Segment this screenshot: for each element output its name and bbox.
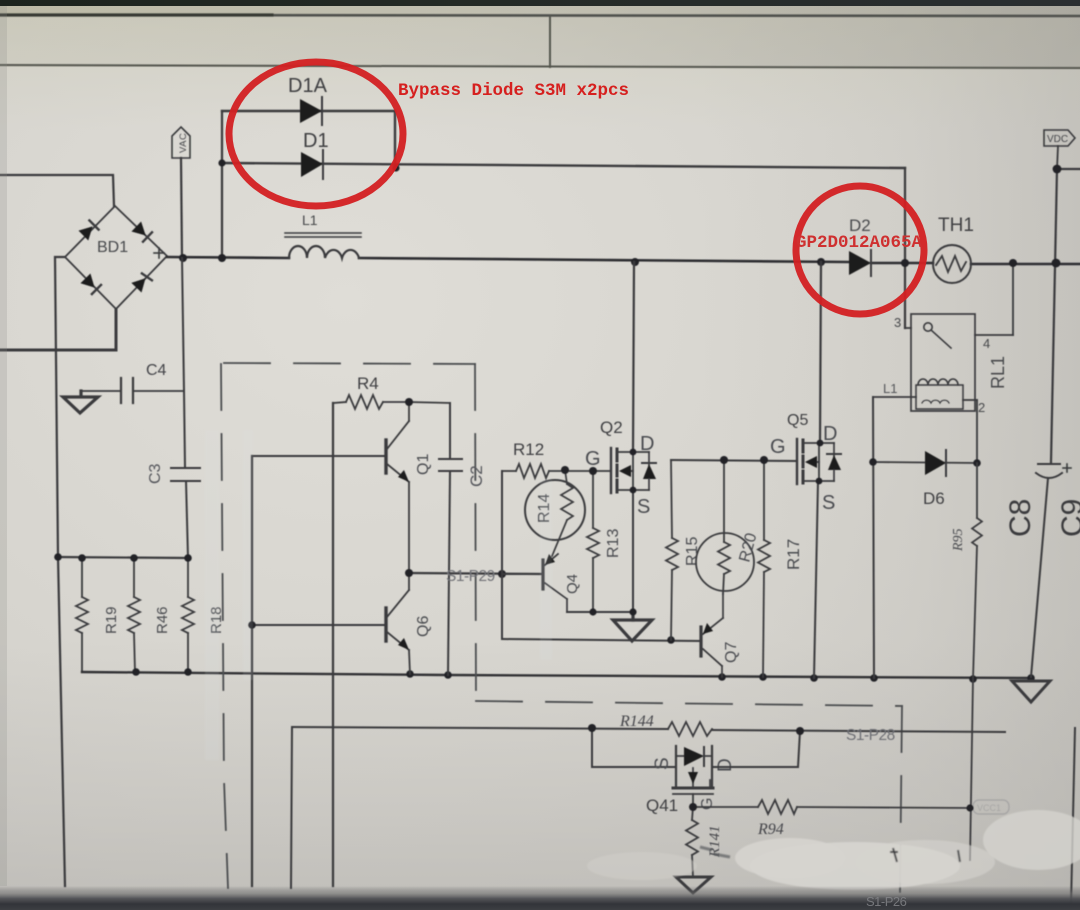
- svg-text:2: 2: [978, 400, 985, 415]
- svg-text:R17: R17: [784, 539, 803, 570]
- svg-text:C8: C8: [1004, 499, 1037, 537]
- svg-text:RL1: RL1: [988, 356, 1008, 389]
- svg-text:Q2: Q2: [600, 418, 623, 437]
- svg-text:G: G: [699, 798, 716, 810]
- svg-text:R12: R12: [513, 440, 544, 459]
- svg-text:D6: D6: [923, 489, 945, 508]
- svg-text:Q6: Q6: [415, 616, 432, 637]
- svg-text:4: 4: [983, 336, 990, 351]
- svg-text:S: S: [652, 757, 673, 770]
- svg-text:Q41: Q41: [646, 796, 678, 815]
- svg-text:C4: C4: [146, 362, 167, 379]
- svg-text:C3: C3: [147, 463, 164, 484]
- svg-text:VDC: VDC: [1047, 134, 1068, 145]
- svg-text:R94: R94: [757, 821, 784, 838]
- svg-text:G: G: [770, 436, 786, 458]
- svg-text:BD1: BD1: [97, 239, 128, 256]
- svg-text:D1A: D1A: [288, 75, 328, 97]
- svg-text:GP2D012A065A: GP2D012A065A: [796, 233, 923, 253]
- svg-text:L1: L1: [883, 381, 897, 396]
- svg-text:Q1: Q1: [415, 454, 432, 475]
- svg-text:Q7: Q7: [723, 642, 740, 663]
- svg-text:VCC1: VCC1: [977, 803, 1001, 813]
- svg-text:S: S: [822, 492, 835, 514]
- svg-text:S1-P29: S1-P29: [446, 568, 495, 585]
- svg-text:R144: R144: [619, 713, 654, 730]
- svg-text:C9: C9: [1056, 499, 1080, 537]
- svg-text:R95: R95: [951, 528, 966, 552]
- svg-text:C2: C2: [467, 465, 486, 487]
- svg-text:D1: D1: [303, 130, 329, 152]
- svg-text:Bypass Diode S3M x2pcs: Bypass Diode S3M x2pcs: [398, 81, 629, 101]
- svg-text:D: D: [715, 758, 736, 772]
- svg-text:S1-P26: S1-P26: [866, 894, 907, 909]
- svg-text:TH1: TH1: [938, 215, 974, 236]
- svg-text:D: D: [823, 423, 837, 445]
- svg-text:S1-P28: S1-P28: [846, 727, 895, 744]
- svg-text:Q4: Q4: [564, 574, 581, 594]
- svg-text:R4: R4: [357, 374, 379, 393]
- svg-text:Q5: Q5: [787, 412, 808, 429]
- svg-text:R19: R19: [103, 606, 120, 634]
- svg-text:3: 3: [894, 315, 901, 330]
- svg-text:G: G: [585, 448, 601, 470]
- svg-text:L1: L1: [302, 212, 318, 228]
- svg-text:R13: R13: [605, 529, 622, 558]
- svg-text:VAC: VAC: [178, 133, 189, 153]
- svg-text:S: S: [637, 496, 650, 518]
- svg-text:R46: R46: [154, 606, 171, 634]
